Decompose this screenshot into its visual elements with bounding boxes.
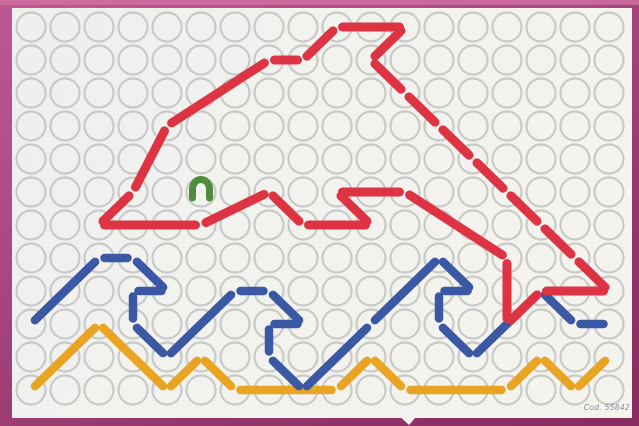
board-code-label: Cod. 55842 (555, 403, 630, 412)
photo-background: Cod. 55842 (0, 0, 639, 426)
lacing-board-scene (0, 0, 639, 426)
